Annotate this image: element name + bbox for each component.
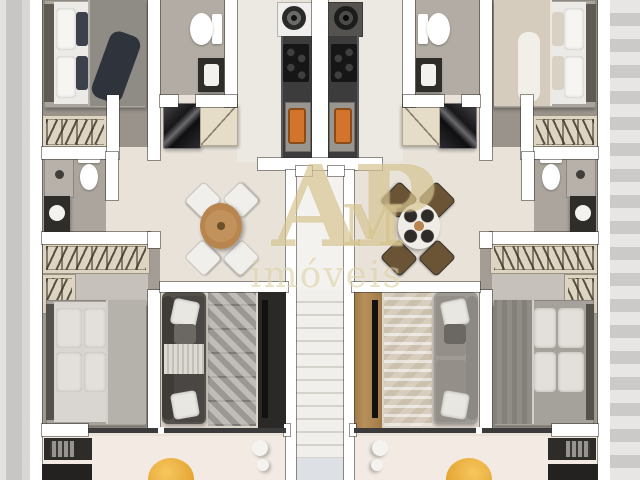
toilet-bowl-icon	[80, 164, 98, 190]
pillow-icon	[170, 390, 200, 420]
wall	[533, 147, 598, 159]
wall-balcony	[42, 424, 88, 436]
washbasin-icon	[421, 64, 436, 86]
pillow-icon	[56, 56, 76, 98]
wall	[107, 95, 119, 159]
cabinet-diagonal	[201, 105, 237, 145]
wall	[480, 290, 492, 428]
shoe-cabinet-icon	[402, 104, 440, 146]
wall	[148, 290, 160, 428]
wall	[42, 147, 107, 159]
wall	[106, 152, 118, 200]
hanging-clothes	[46, 119, 104, 145]
pillow-icon	[56, 352, 82, 392]
wall	[160, 282, 288, 292]
hanging-clothes	[494, 246, 594, 270]
floor-kitchen	[359, 0, 403, 162]
wardrobe-rack-icon	[490, 242, 598, 274]
shower-drain-icon	[55, 170, 64, 179]
accent-pillow-icon	[552, 56, 564, 90]
washbasin-icon	[575, 205, 591, 221]
duvet	[106, 300, 146, 424]
wall-outer	[598, 0, 610, 480]
washer-door-icon	[282, 6, 306, 30]
pillow-icon	[174, 324, 196, 344]
wall	[490, 232, 598, 244]
refrigerator-icon	[163, 103, 201, 149]
stair-wall-stub	[296, 166, 312, 176]
pillow-icon	[84, 352, 106, 392]
wall	[480, 0, 492, 160]
wall	[42, 232, 150, 244]
dining-table-icon	[200, 203, 242, 249]
sliding-door-track	[88, 428, 286, 433]
tv-icon	[372, 300, 378, 418]
wall	[480, 232, 492, 248]
stair-wall-stub	[328, 166, 344, 176]
exterior-right-louvers	[610, 0, 640, 480]
stair-steps	[296, 290, 320, 458]
wall	[148, 232, 160, 248]
wall	[196, 95, 237, 107]
headboard-icon	[46, 304, 54, 420]
rug-icon	[208, 288, 256, 426]
vase-icon	[372, 440, 388, 456]
rug-icon	[384, 288, 432, 426]
pillow-icon	[534, 352, 556, 392]
floor-plan-render: AP M imóveis	[0, 0, 640, 480]
exterior-left-strip	[0, 0, 30, 480]
wall-kitchen-center	[320, 0, 328, 162]
wardrobe-rack-icon	[42, 115, 108, 149]
shoe-cabinet-icon	[200, 104, 238, 146]
stair-steps	[320, 290, 344, 458]
dining-table-icon	[398, 203, 440, 249]
throw-blanket	[518, 32, 540, 102]
accent-pillow-icon	[76, 12, 88, 46]
sliding-door-post	[158, 427, 164, 434]
headboard-icon	[586, 304, 594, 420]
vase-icon	[252, 440, 268, 456]
rug-pattern	[208, 288, 256, 426]
stair-landing	[296, 170, 320, 292]
grill-icon	[566, 441, 590, 457]
toilet-bowl-icon	[427, 13, 450, 45]
stair-bottom-landing	[296, 458, 320, 480]
pillow-icon	[440, 390, 470, 420]
pillow-icon	[444, 324, 466, 344]
stair-bottom-landing	[320, 458, 344, 480]
toilet-icon	[212, 14, 222, 44]
wardrobe-rack-icon	[42, 242, 150, 274]
wall	[160, 95, 178, 107]
unit-left	[30, 0, 320, 480]
toilet-bowl-icon	[542, 164, 560, 190]
toilet-bowl-icon	[190, 13, 213, 45]
accent-pillow-icon	[552, 12, 564, 46]
pillow-icon	[84, 308, 106, 348]
stair-landing	[320, 170, 344, 292]
wall	[352, 282, 480, 292]
pillow-icon	[56, 308, 82, 348]
pillow-icon	[564, 8, 584, 50]
sink-basin	[288, 108, 306, 144]
pillow-icon	[56, 8, 76, 50]
cabinet-diagonal	[403, 105, 439, 145]
sliding-door-post	[476, 427, 482, 434]
wall-outer	[30, 0, 42, 480]
wardrobe-rack-icon	[532, 115, 598, 149]
throw-blanket	[164, 344, 204, 374]
hanging-clothes	[46, 246, 146, 270]
pillow-icon	[564, 56, 584, 98]
rug-pattern	[384, 288, 432, 426]
washbasin-icon	[204, 64, 219, 86]
wall-balcony	[552, 424, 598, 436]
washer-door-icon	[334, 6, 358, 30]
wall	[462, 95, 480, 107]
wall	[521, 95, 533, 159]
wall	[148, 0, 160, 160]
shower-drain-icon	[576, 170, 585, 179]
unit-right	[320, 0, 610, 480]
wall	[522, 152, 534, 200]
sink-basin	[334, 108, 352, 144]
sliding-door-track	[354, 428, 552, 433]
pillow-icon	[558, 308, 584, 348]
floor-kitchen	[237, 0, 281, 162]
balcony-counter	[36, 464, 92, 480]
balcony-counter	[548, 464, 604, 480]
wall-kitchen-center	[312, 0, 320, 162]
hanging-clothes	[536, 119, 594, 145]
pillow-icon	[558, 352, 584, 392]
duvet	[494, 300, 534, 424]
tv-icon	[262, 300, 268, 418]
pillow-icon	[534, 308, 556, 348]
grill-icon	[50, 441, 74, 457]
washbasin-icon	[49, 205, 65, 221]
wall	[403, 95, 444, 107]
vase-icon	[371, 459, 383, 471]
vase-icon	[257, 459, 269, 471]
refrigerator-icon	[439, 103, 477, 149]
wall	[225, 0, 237, 107]
headboard-icon	[586, 4, 596, 102]
accent-pillow-icon	[76, 56, 88, 90]
cooktop-icon	[331, 44, 357, 82]
headboard-icon	[44, 4, 54, 102]
cooktop-icon	[283, 44, 309, 82]
wall	[403, 0, 415, 107]
